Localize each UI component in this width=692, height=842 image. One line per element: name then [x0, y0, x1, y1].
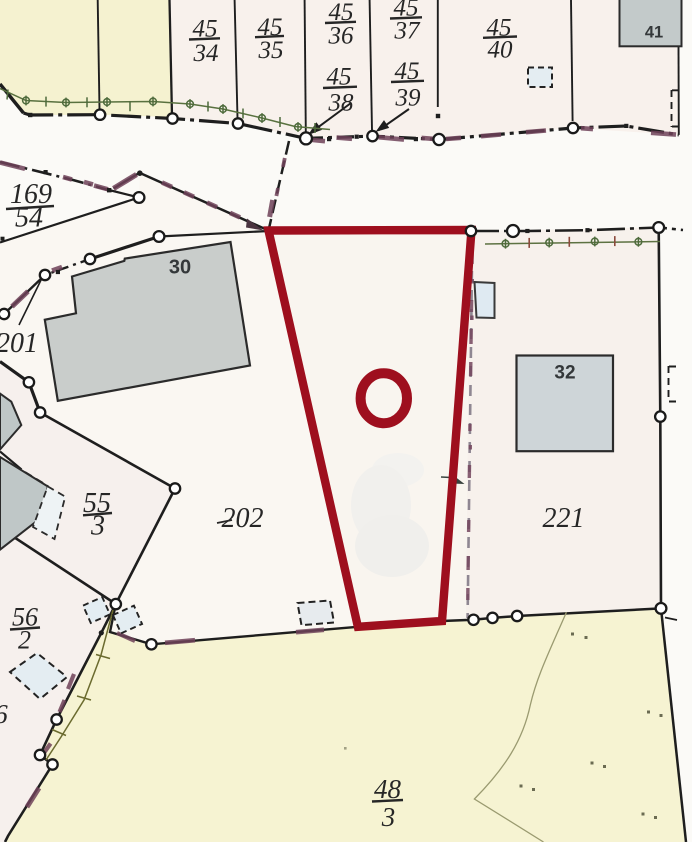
- svg-text:38: 38: [328, 90, 355, 117]
- svg-text:6: 6: [0, 699, 8, 729]
- svg-text:221: 221: [543, 503, 585, 534]
- svg-text:36: 36: [328, 22, 355, 49]
- svg-text:202: 202: [222, 503, 264, 534]
- svg-text:32: 32: [554, 363, 575, 384]
- svg-text:39: 39: [395, 85, 422, 112]
- svg-text:34: 34: [193, 40, 219, 67]
- svg-text:30: 30: [169, 257, 191, 279]
- svg-text:35: 35: [258, 37, 284, 64]
- svg-text:41: 41: [645, 24, 663, 42]
- svg-text:3: 3: [381, 802, 396, 832]
- svg-text:37: 37: [394, 18, 422, 45]
- svg-text:40: 40: [488, 37, 514, 64]
- svg-text:201: 201: [0, 328, 38, 359]
